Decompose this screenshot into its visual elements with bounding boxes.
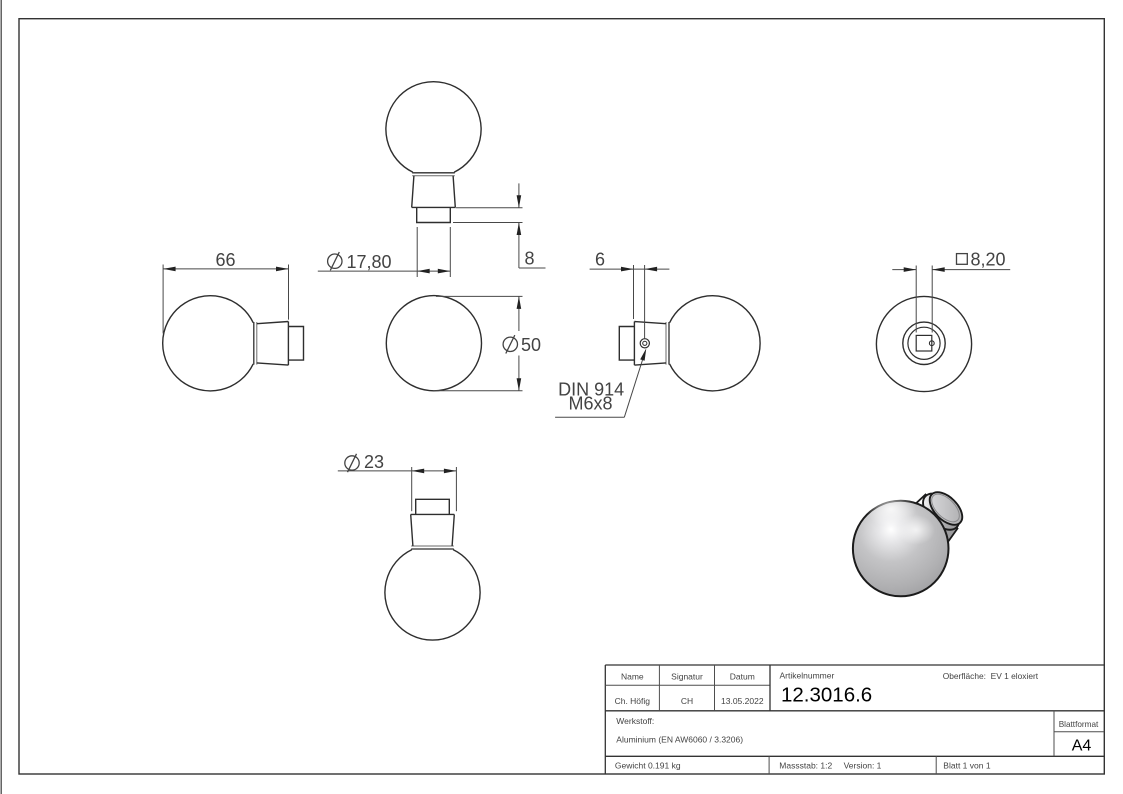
svg-text:Oberfläche: EV 1 eloxiert: Oberfläche: EV 1 eloxiert: [943, 671, 1039, 681]
svg-text:50: 50: [521, 335, 541, 355]
svg-text:A4: A4: [1072, 738, 1092, 755]
svg-text:13.05.2022: 13.05.2022: [721, 696, 764, 706]
svg-text:12.3016.6: 12.3016.6: [781, 684, 872, 707]
svg-text:Gewicht 0.191 kg: Gewicht 0.191 kg: [615, 761, 681, 771]
svg-text:Massstab: 1:2: Massstab: 1:2: [779, 761, 832, 771]
svg-text:CH: CH: [681, 696, 693, 706]
svg-text:Blattformat: Blattformat: [1059, 720, 1099, 729]
svg-text:Name: Name: [621, 671, 644, 681]
svg-text:Aluminium (EN AW6060 / 3.3206): Aluminium (EN AW6060 / 3.3206): [616, 735, 743, 745]
svg-text:8: 8: [525, 249, 535, 269]
svg-text:Blatt 1 von 1: Blatt 1 von 1: [943, 761, 991, 771]
svg-text:Artikelnummer: Artikelnummer: [780, 671, 835, 681]
svg-text:8,20: 8,20: [971, 250, 1006, 270]
svg-text:Datum: Datum: [730, 671, 755, 681]
svg-text:Signatur: Signatur: [671, 671, 703, 681]
svg-text:Version: 1: Version: 1: [844, 761, 882, 771]
svg-text:23: 23: [364, 452, 384, 472]
svg-text:Werkstoff:: Werkstoff:: [616, 716, 654, 726]
svg-text:66: 66: [215, 250, 235, 270]
svg-text:Ch. Höfig: Ch. Höfig: [615, 696, 651, 706]
svg-text:6: 6: [595, 250, 605, 270]
svg-text:M6x8: M6x8: [569, 394, 613, 414]
svg-text:17,80: 17,80: [347, 252, 392, 272]
